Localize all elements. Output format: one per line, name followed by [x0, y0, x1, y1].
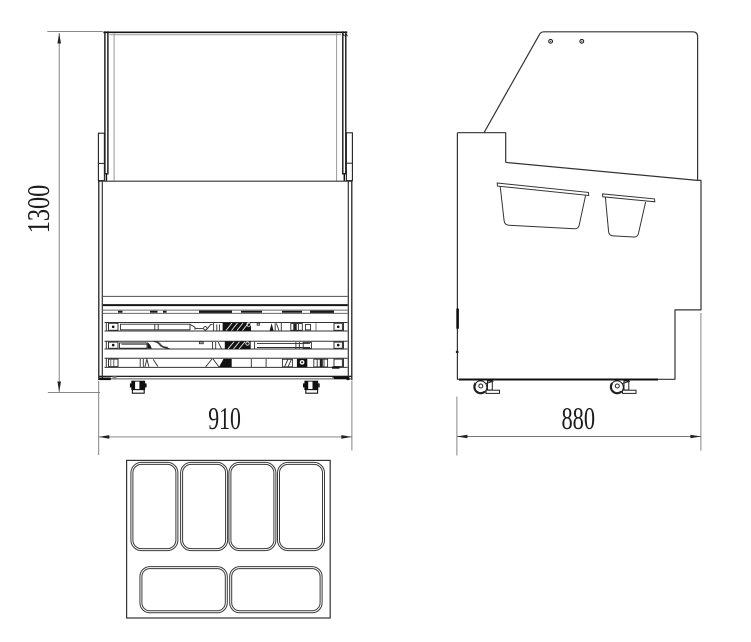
svg-text:1300: 1300 — [22, 185, 57, 234]
svg-text:910: 910 — [208, 401, 241, 436]
svg-text:880: 880 — [561, 400, 595, 436]
